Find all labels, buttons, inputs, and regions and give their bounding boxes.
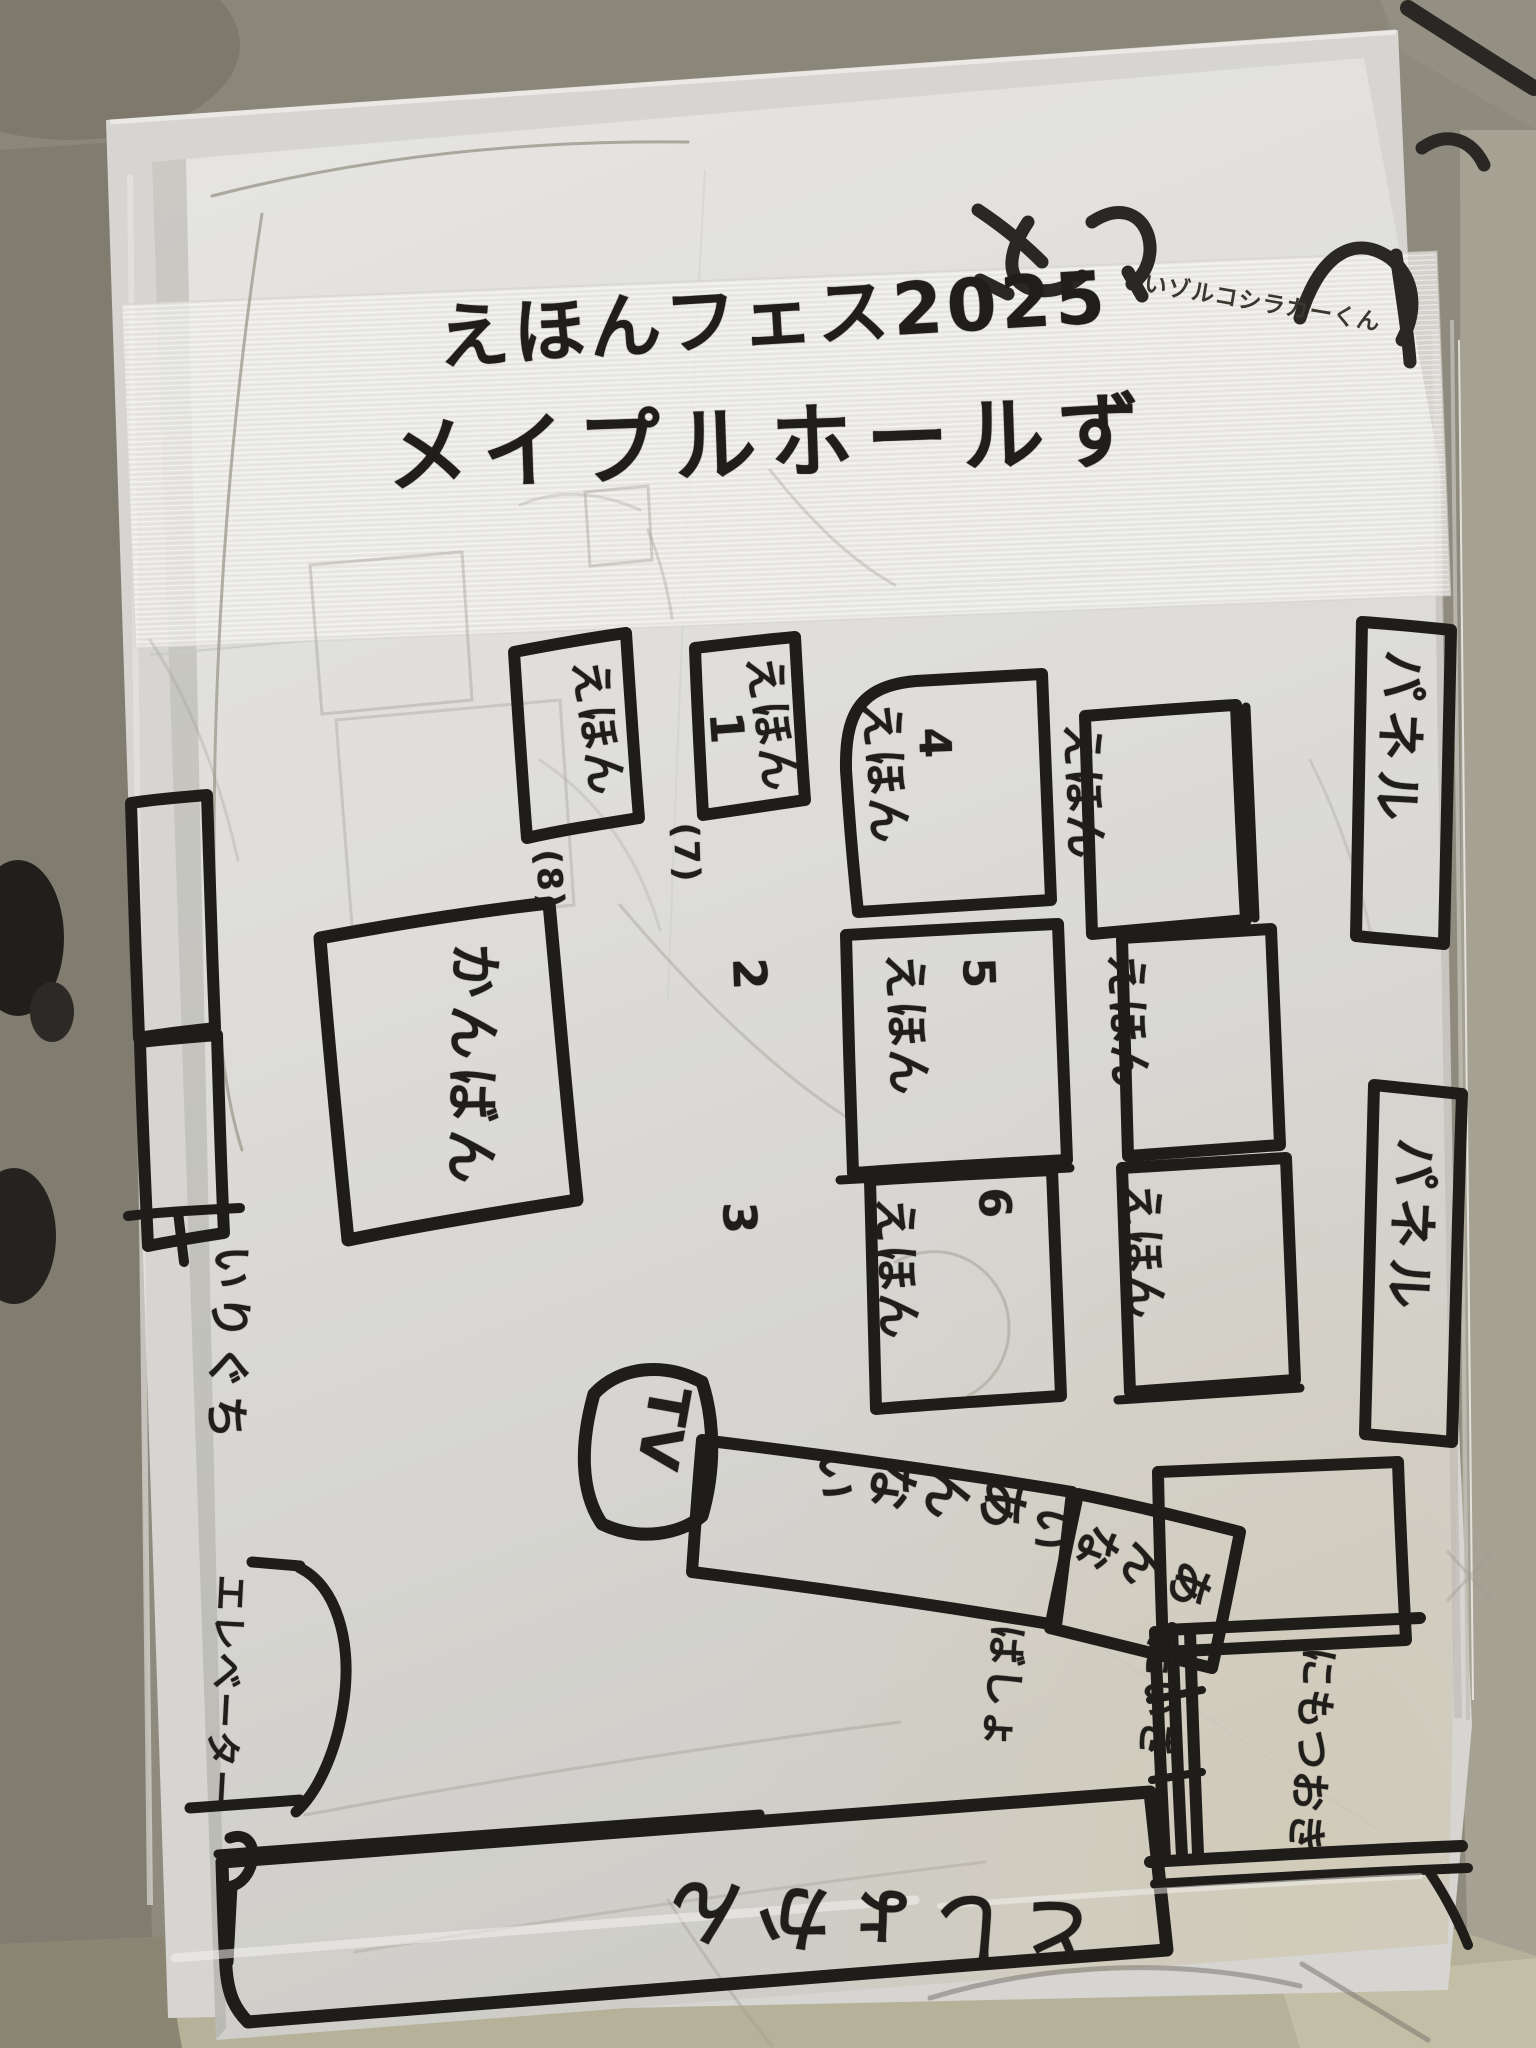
booth-label-text: えほん (1056, 721, 1110, 861)
booth-label-text: えほん (1116, 1181, 1170, 1321)
booth-ehon-8-number: (8) (528, 848, 570, 911)
booth-number-text: 4 (909, 727, 963, 867)
panel-1-label: パネル (1367, 649, 1432, 832)
booth-number-text: 2 (723, 957, 780, 1103)
luggage-line: にもつおき (1278, 1645, 1344, 1857)
booth-ehon-4-label: えほん 4 (859, 718, 1208, 868)
booth-number-text: 3 (713, 1201, 770, 1347)
booth-number-text: 6 (969, 1187, 1023, 1327)
entrance-label: いりぐち (200, 1244, 256, 1446)
dark-blob (30, 982, 74, 1042)
luggage-area-label: にもつおき たいき ばしょ (915, 1620, 1448, 1864)
panel-2-label: パネル (1379, 1137, 1444, 1320)
booth-number-text: 5 (953, 957, 1007, 1097)
luggage-line: たいき (1122, 1634, 1188, 1846)
tv-label: TV (623, 1381, 700, 1476)
booth-label-text: えほん (868, 1196, 925, 1342)
signboard-label: かんばん (439, 943, 504, 1192)
booth-label-text: えほん (1100, 951, 1154, 1091)
booth-ehon-6-label: えほん 6 (919, 1178, 1268, 1328)
luggage-line: ばしょ (967, 1623, 1033, 1835)
booth-number-text: 1 (700, 710, 761, 857)
photo-of-hand-drawn-floor-plan: えほんフェス2025 メイプルホールず いゾルコシラカーくん パネル パネル え… (0, 0, 1536, 2048)
booth-ehon-5-label: えほん 5 (903, 948, 1252, 1098)
